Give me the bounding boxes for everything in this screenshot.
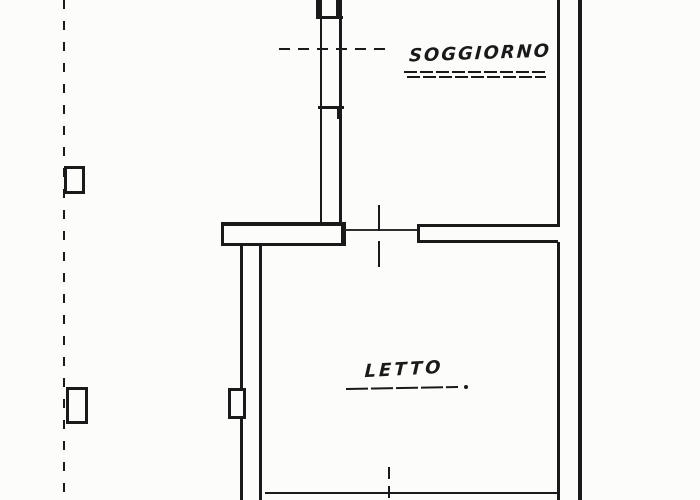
letto-underline <box>346 386 458 390</box>
right-wall-inner-line-upper <box>557 0 560 227</box>
bottom-window-axis-dashed-line <box>388 467 390 500</box>
window-wall-left-line <box>320 0 322 225</box>
wall-pilaster <box>228 388 246 419</box>
window-jamb-middle <box>337 106 342 119</box>
letto-wall-inner-line <box>259 245 262 500</box>
boundary-pillar-upper <box>64 166 85 194</box>
soggiorno-underline-top <box>404 71 548 73</box>
letto-wall-outer-line <box>240 245 243 500</box>
room-label-letto: LETTO <box>362 357 447 382</box>
letto-underline-dot <box>464 385 468 389</box>
bottom-wall-line <box>265 492 558 494</box>
window-sill-top <box>316 16 343 19</box>
soggiorno-underline-bottom <box>407 76 546 78</box>
right-wall-inner-line-lower <box>557 242 560 500</box>
partition-wall-left-segment <box>221 222 346 246</box>
partition-wall-right-segment <box>417 224 558 243</box>
room-label-soggiorno: SOGGIORNO <box>406 40 553 66</box>
boundary-dashed-line <box>63 0 65 500</box>
door-threshold-line <box>345 229 418 231</box>
boundary-pillar-lower <box>66 387 88 424</box>
window-axis-dashed-line <box>279 48 387 50</box>
door-axis-dashed-line <box>378 205 380 269</box>
floor-plan: SOGGIORNO LETTO <box>0 0 700 500</box>
right-wall-outer-line <box>578 0 582 500</box>
